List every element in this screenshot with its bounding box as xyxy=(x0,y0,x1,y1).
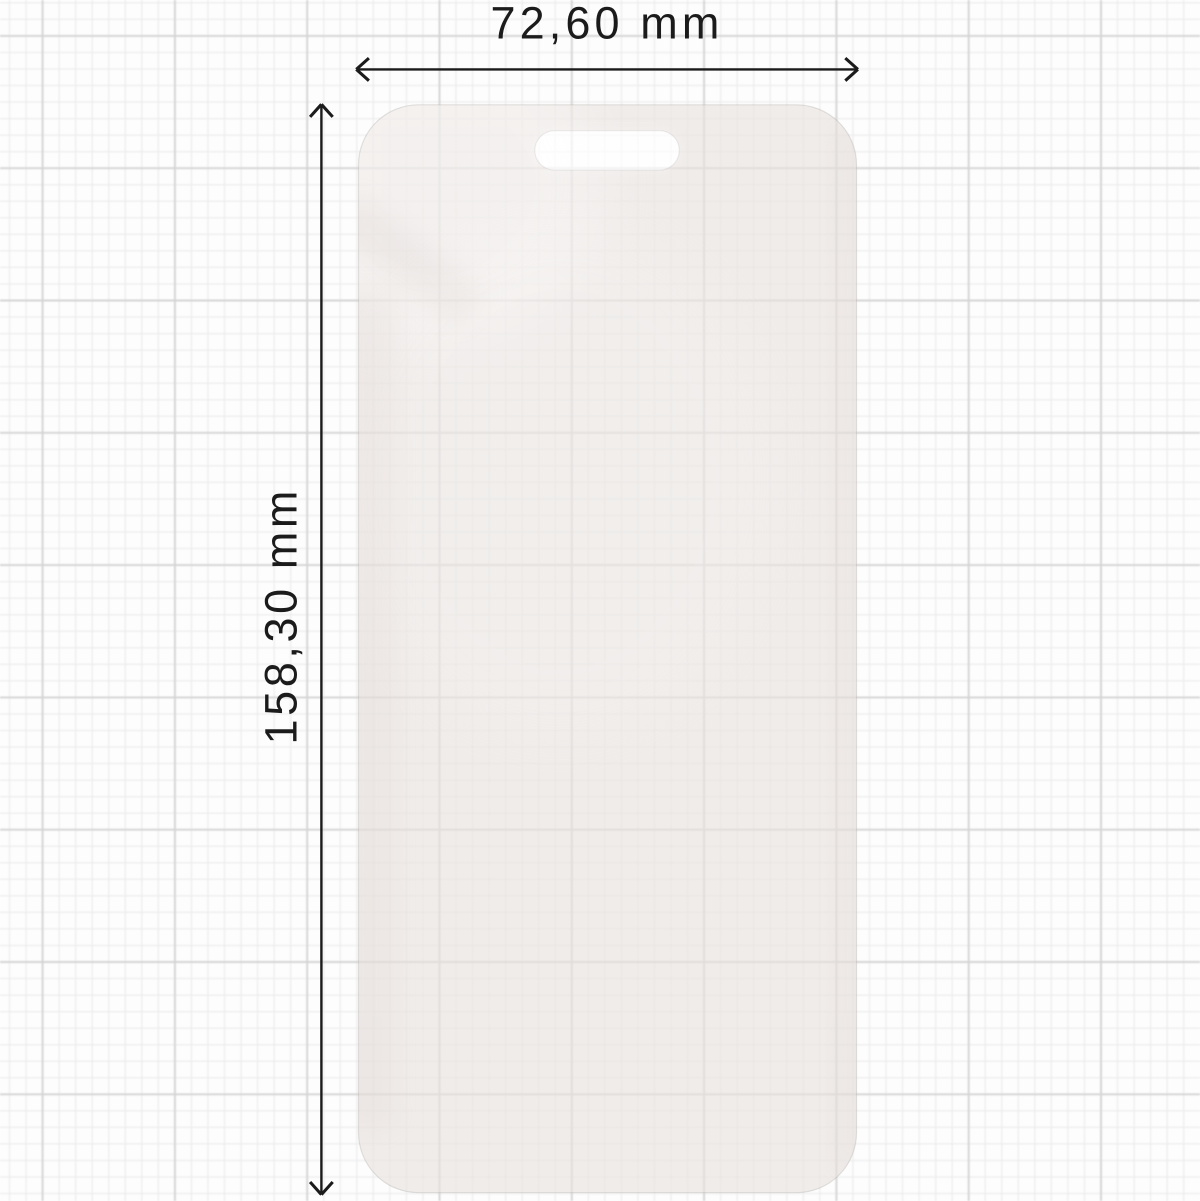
svg-text:158,30 mm: 158,30 mm xyxy=(256,487,307,745)
svg-text:72,60 mm: 72,60 mm xyxy=(491,0,724,49)
